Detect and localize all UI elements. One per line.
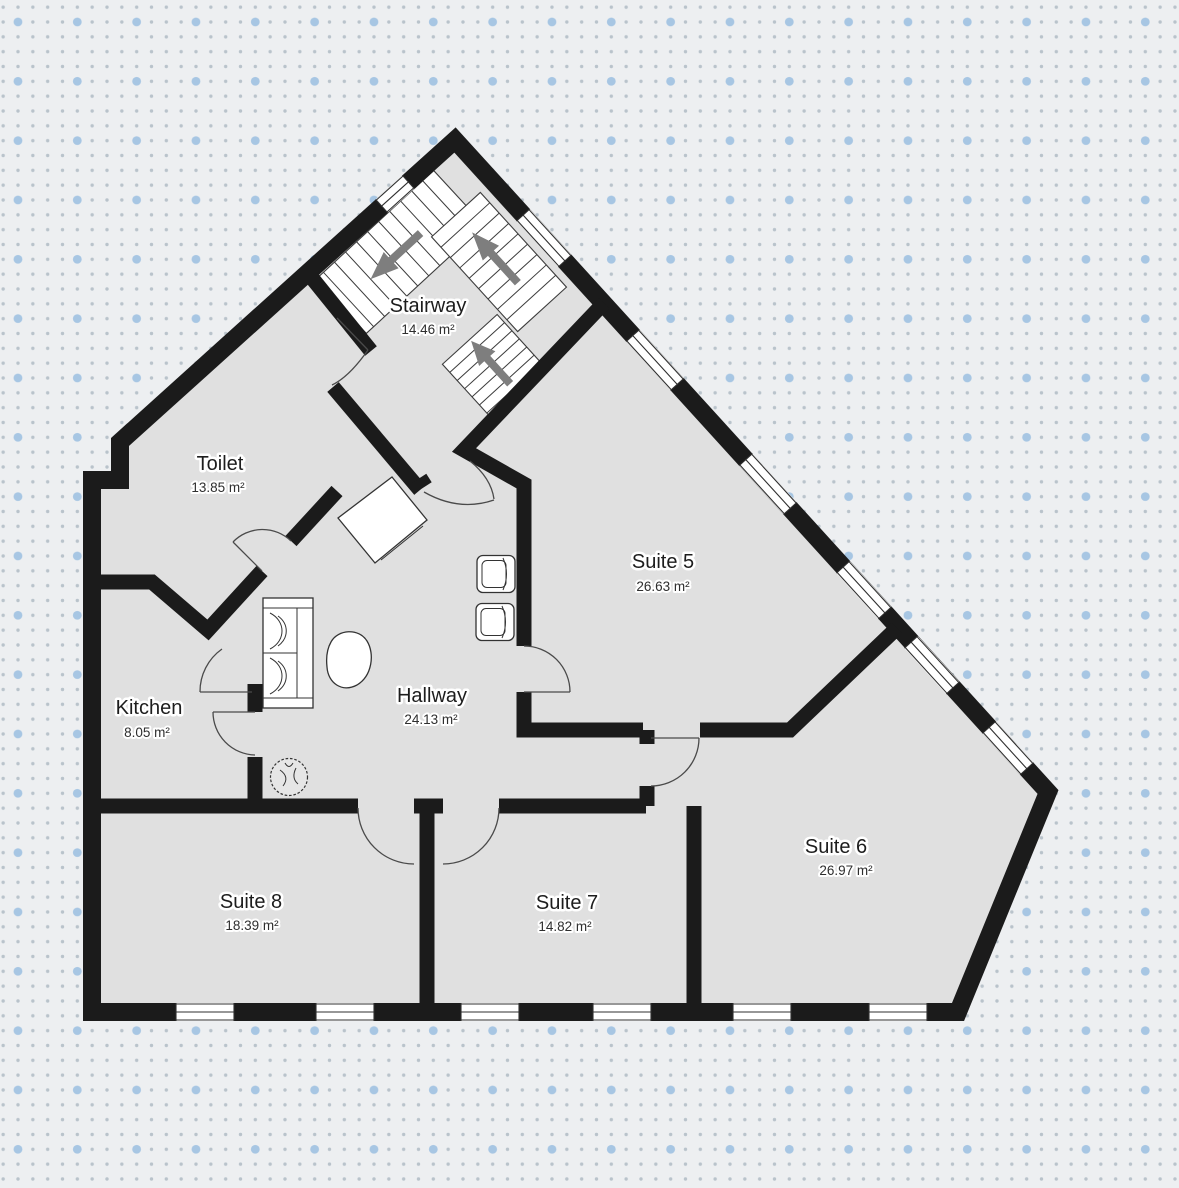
armchair[interactable] bbox=[476, 604, 514, 641]
svg-text:Suite 8: Suite 8 bbox=[220, 891, 282, 913]
svg-text:Hallway: Hallway bbox=[397, 685, 467, 707]
svg-text:24.13 m²: 24.13 m² bbox=[404, 712, 458, 727]
svg-text:Toilet: Toilet bbox=[197, 453, 244, 475]
svg-text:26.97 m²: 26.97 m² bbox=[819, 863, 873, 878]
room-label-hallway[interactable]: Hallway 24.13 m² bbox=[397, 685, 467, 727]
room-label-toilet[interactable]: Toilet 13.85 m² bbox=[191, 453, 245, 495]
svg-text:8.05 m²: 8.05 m² bbox=[124, 725, 170, 740]
svg-text:Suite 6: Suite 6 bbox=[805, 836, 867, 858]
room-label-suite5[interactable]: Suite 5 26.63 m² bbox=[632, 551, 694, 594]
room-label-suite8[interactable]: Suite 8 18.39 m² bbox=[220, 891, 282, 933]
svg-text:14.82 m²: 14.82 m² bbox=[538, 919, 592, 934]
svg-text:Suite 7: Suite 7 bbox=[536, 892, 598, 914]
plant[interactable] bbox=[271, 759, 308, 796]
floorplan-canvas[interactable]: Stairway 14.46 m² Toilet 13.85 m² Suite … bbox=[0, 0, 1179, 1188]
armchair[interactable] bbox=[477, 556, 515, 593]
svg-text:14.46 m²: 14.46 m² bbox=[401, 322, 455, 337]
svg-text:26.63 m²: 26.63 m² bbox=[636, 579, 690, 594]
room-label-suite7[interactable]: Suite 7 14.82 m² bbox=[536, 892, 598, 934]
svg-text:18.39 m²: 18.39 m² bbox=[225, 918, 279, 933]
svg-text:Suite 5: Suite 5 bbox=[632, 551, 694, 573]
svg-text:Kitchen: Kitchen bbox=[116, 697, 183, 719]
sofa[interactable] bbox=[263, 598, 313, 708]
svg-text:13.85 m²: 13.85 m² bbox=[191, 480, 245, 495]
svg-text:Stairway: Stairway bbox=[390, 295, 467, 317]
